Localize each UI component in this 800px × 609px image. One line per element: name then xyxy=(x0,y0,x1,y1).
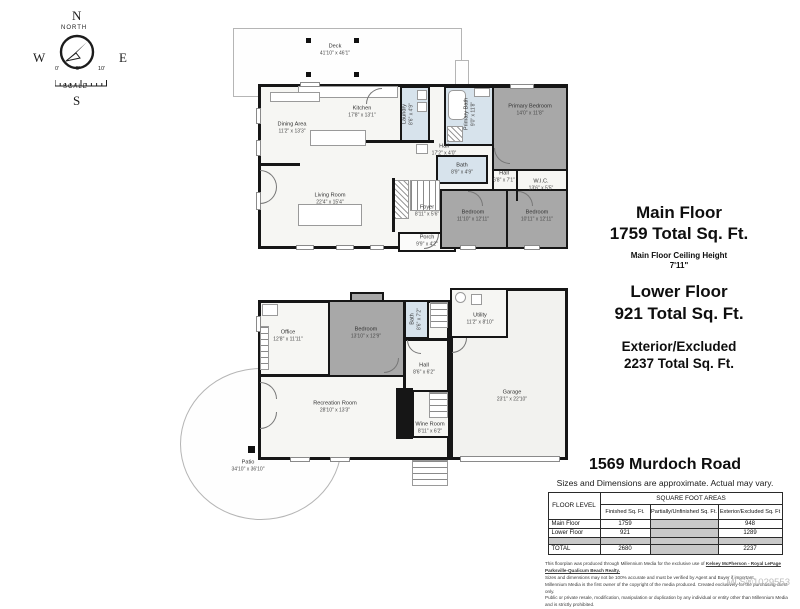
ceiling-height-value: 7'11" xyxy=(580,261,778,271)
room-label-bath-lower: Bath 8'6" x 7'2" xyxy=(409,308,422,330)
compass-s-label: S xyxy=(73,93,80,109)
room-label-hall-small: Hall 6'8" x 7'1" xyxy=(493,170,515,183)
empty-cell xyxy=(600,538,650,545)
scale-tick-5: 5' xyxy=(76,66,80,72)
room-label-rec: Recreation Room 28'10" x 13'3" xyxy=(313,400,357,413)
room-label-bedroom-1: Bedroom 11'10" x 12'11" xyxy=(457,209,489,222)
lower-floor-sqft: 921 Total Sq. Ft. xyxy=(580,303,778,324)
window xyxy=(336,245,354,250)
room-label-primary-bedroom: Primary Bedroom 14'0" x 11'8" xyxy=(508,103,552,116)
total-label: TOTAL xyxy=(548,545,600,555)
room-label-porch: Porch 9'9" x 4'2" xyxy=(416,234,438,247)
room-label-living: Living Room 22'4" x 15'4" xyxy=(314,192,345,205)
window xyxy=(510,84,534,89)
room-label-utility: Utility 11'2" x 8'10" xyxy=(466,312,493,325)
col-header-exterior: Exterior/Excluded Sq. Ft xyxy=(718,505,782,520)
total-partial xyxy=(650,545,718,555)
window xyxy=(300,82,320,87)
shower xyxy=(447,126,463,142)
summary-block: Main Floor 1759 Total Sq. Ft. Main Floor… xyxy=(580,202,778,373)
table-row-empty xyxy=(548,538,782,545)
living-room-sofa xyxy=(298,204,362,226)
fine-print-line-1: This floorplan was produced through Mill… xyxy=(545,561,793,575)
water-heater xyxy=(455,292,466,303)
room-label-bedroom-lower: Bedroom 13'10" x 12'9" xyxy=(351,326,381,339)
floor-plan-page: { "compass": { "n": "N", "e": "E", "s": … xyxy=(0,0,800,600)
room-label-garage: Garage 23'1" x 22'10" xyxy=(497,389,527,402)
address-block: 1569 Murdoch Road Sizes and Dimensions a… xyxy=(545,456,785,555)
row-label: Lower Floor xyxy=(548,529,600,538)
window xyxy=(256,108,261,124)
total-exterior: 2237 xyxy=(718,545,782,555)
dining-living-wall xyxy=(258,163,300,166)
table-row-lower-floor: Lower Floor 921 1289 xyxy=(548,529,782,538)
room-label-hall-main: Hall 17'2" x 4'0" xyxy=(432,143,457,156)
washer xyxy=(417,90,427,100)
scale-tick-10: 10' xyxy=(98,66,105,72)
room-label-primary-bath: Primary Bath 9'0" x 11'8" xyxy=(463,98,476,130)
window xyxy=(460,245,476,250)
room-label-deck: Deck 41'10" x 46'1" xyxy=(320,43,350,56)
dining-buffet xyxy=(270,92,320,102)
room-label-foyer: Foyer 8'11" x 5'6" xyxy=(415,204,439,217)
floor-level-header: FLOOR LEVEL xyxy=(548,493,600,520)
furnace xyxy=(471,294,482,305)
exterior-steps xyxy=(412,460,448,486)
main-floor-sqft: 1759 Total Sq. Ft. xyxy=(580,223,778,244)
deck-post xyxy=(354,72,359,77)
compass-north-label: NORTH xyxy=(61,25,87,31)
room-label-office: Office 12'8" x 11'11" xyxy=(273,329,302,342)
room-label-wic: W.I.C. 13'6" x 5'5" xyxy=(529,178,554,191)
scale-tick-0: 0' xyxy=(55,66,59,72)
table-row-main-floor: Main Floor 1759 948 xyxy=(548,520,782,529)
stairs-wine xyxy=(429,392,448,418)
window xyxy=(330,457,350,462)
fine-print-text: This floorplan was produced through Mill… xyxy=(545,561,706,566)
table-row-total: TOTAL 2680 2237 xyxy=(548,545,782,555)
areas-header: SQUARE FOOT AREAS xyxy=(600,493,782,505)
room-label-laundry: Laundry 8'6" x 4'9" xyxy=(401,103,414,125)
office-cabinet xyxy=(262,304,278,316)
lower-floor-title: Lower Floor xyxy=(580,281,778,302)
room-label-bath-main: Bath 8'9" x 4'9" xyxy=(451,162,473,175)
partial-value xyxy=(650,529,718,538)
deck-post xyxy=(354,38,359,43)
room-label-hall-lower: Hall 8'6" x 6'2" xyxy=(413,362,435,375)
compass-w-label: W xyxy=(33,50,45,66)
kitchen-island xyxy=(310,130,366,146)
kitchen-hall-wall xyxy=(364,140,434,143)
window xyxy=(524,245,540,250)
exterior-value: 1289 xyxy=(718,529,782,538)
patio-post xyxy=(248,446,255,453)
address-title: 1569 Murdoch Road xyxy=(545,456,785,474)
dimension-disclaimer: Sizes and Dimensions are approximate. Ac… xyxy=(545,478,785,488)
foyer-wall xyxy=(392,178,395,232)
scale-label: SCALE xyxy=(63,84,88,90)
empty-cell xyxy=(718,538,782,545)
col-header-partial: Partially/Unfinished Sq. Ft. xyxy=(650,505,718,520)
main-floor-title: Main Floor xyxy=(580,202,778,223)
office-rec-wall xyxy=(258,374,330,377)
chimney-mass xyxy=(396,388,413,439)
finished-value: 921 xyxy=(600,529,650,538)
compass-e-label: E xyxy=(119,50,127,66)
square-foot-table: FLOOR LEVEL SQUARE FOOT AREAS Finished S… xyxy=(548,492,783,555)
fine-print-line-4: Public or private resale, modification, … xyxy=(545,595,793,609)
window xyxy=(290,457,310,462)
window xyxy=(296,245,314,250)
total-finished: 2680 xyxy=(600,545,650,555)
empty-cell xyxy=(548,538,600,545)
stairs-lower-top xyxy=(430,302,448,328)
exterior-value: 948 xyxy=(718,520,782,529)
finished-value: 1759 xyxy=(600,520,650,529)
room-label-dining: Dining Area 11'2" x 13'3" xyxy=(278,121,307,134)
window xyxy=(256,140,261,156)
dryer xyxy=(417,102,427,112)
window xyxy=(370,245,384,250)
hall-closet xyxy=(416,144,428,154)
deck-post xyxy=(306,38,311,43)
col-header-finished: Finished Sq. Ft. xyxy=(600,505,650,520)
hall-rec-wall xyxy=(403,338,406,390)
room-label-patio: Patio 34'10" x 36'10" xyxy=(232,459,265,472)
office-shelves xyxy=(260,326,269,370)
window xyxy=(256,316,261,332)
mls-watermark: MLS®1029553 xyxy=(690,577,790,588)
bath-vanity xyxy=(474,88,490,97)
closet-hatch xyxy=(394,180,409,219)
room-label-wine: Wine Room 8'11" x 6'2" xyxy=(415,421,444,434)
deck-post xyxy=(306,72,311,77)
exterior-title: Exterior/Excluded xyxy=(580,338,778,356)
row-label: Main Floor xyxy=(548,520,600,529)
exterior-sqft: 2237 Total Sq. Ft. xyxy=(580,355,778,373)
empty-cell xyxy=(650,538,718,545)
compass-n-label: N xyxy=(72,8,81,24)
ceiling-height-label: Main Floor Ceiling Height xyxy=(580,251,778,261)
room-label-bedroom-2: Bedroom 10'11" x 12'11" xyxy=(521,209,553,222)
partial-value xyxy=(650,520,718,529)
room-label-kitchen: Kitchen 17'8" x 13'1" xyxy=(348,105,375,118)
